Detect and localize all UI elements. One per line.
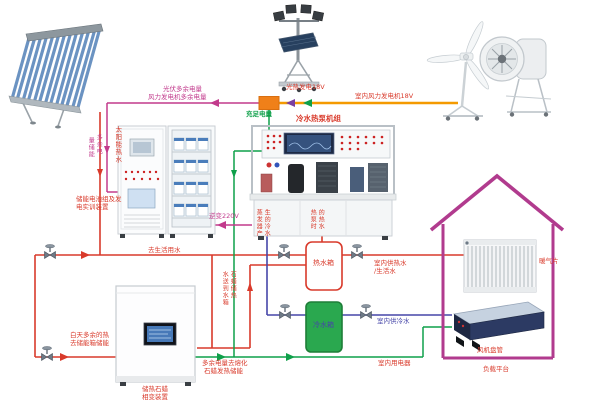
label-indoor-wind-gen: 室内风力发电机18V	[355, 93, 413, 101]
label-load-platform: 负载平台	[483, 366, 509, 374]
label-inverter: 逆变220V	[209, 213, 239, 221]
energy-system-diagram: 光伏多余电量 风力发电机多余电量 充足电量 光热发电18V 室内风力发电机18V…	[0, 0, 600, 419]
label-paraffin-to-tank-col-left: 水送到水箱	[221, 271, 228, 306]
label-wind-surplus: 风力发电机多余电量	[148, 94, 207, 102]
paraffin-storage-cabinet	[116, 286, 195, 386]
label-heatpump-hot-col-left: 热泵时	[309, 209, 316, 230]
label-evaporator-col-left: 蒸发器产	[255, 209, 262, 237]
label-melt-line2: 石蜡发热储能	[204, 368, 243, 376]
label-indoor-hot-line2: /生活水	[374, 268, 396, 276]
label-paraffin-line2: 相变装置	[142, 394, 168, 402]
label-battery-line2: 电实训装置	[76, 204, 109, 212]
label-paraffin-to-tank-col-right: 石蜡储热	[229, 271, 236, 299]
label-cold-tank: 冷水箱	[313, 321, 334, 329]
wind-turbine	[427, 20, 491, 120]
label-radiator: 暖气片	[539, 258, 559, 266]
label-heat-pump-title: 冷水热泵机组	[296, 114, 341, 123]
fan-coil-unit	[454, 302, 544, 351]
label-charged: 充足电量	[246, 111, 272, 119]
label-evaporator-col-right: 生的冷水	[263, 209, 270, 237]
label-hot-tank: 热水箱	[313, 259, 334, 267]
label-surplus-storage-col-right: 多余电	[95, 134, 102, 155]
ducted-fan-wind-source	[480, 37, 551, 117]
radiator	[464, 240, 536, 292]
power-junction-box	[259, 97, 279, 110]
label-fan-coil: 风机盘管	[477, 347, 503, 355]
label-surplus-storage-col-left: 量储能	[87, 137, 94, 158]
solar-tracker-pv	[273, 5, 323, 93]
battery-cabinet-right	[168, 126, 215, 238]
label-domestic: 去生活用水	[148, 247, 181, 255]
label-indoor-appliances: 室内用电器	[378, 360, 411, 368]
label-day-surplus-line2: 去储能箱储能	[70, 340, 109, 348]
solar-thermal-collector	[9, 24, 103, 129]
label-indoor-cold: 室内供冷水	[377, 318, 410, 326]
label-solar-thermal-gen: 光热发电18V	[286, 84, 325, 92]
battery-cabinet-left	[118, 126, 166, 238]
label-solar-hot: 太阳能热水	[113, 126, 121, 164]
label-heatpump-hot-col-right: 的热水	[317, 209, 324, 230]
